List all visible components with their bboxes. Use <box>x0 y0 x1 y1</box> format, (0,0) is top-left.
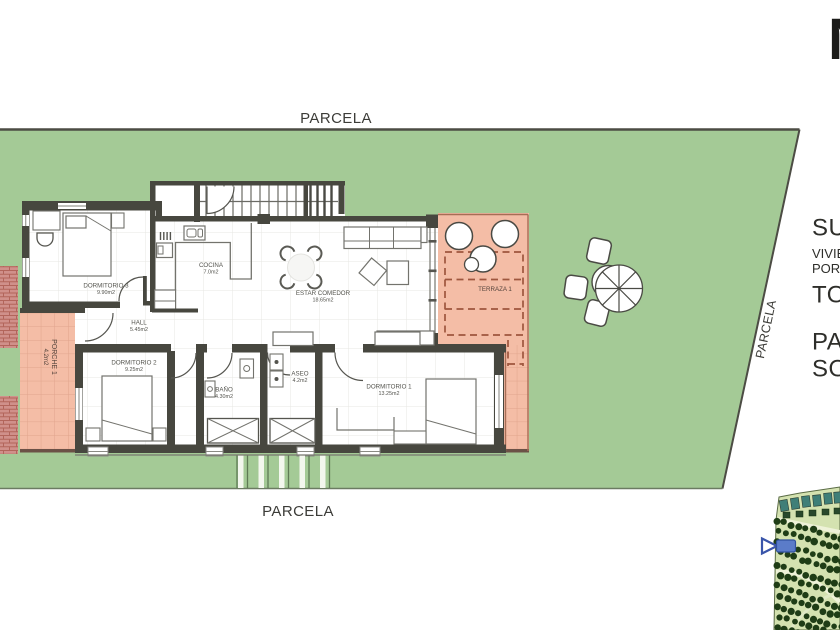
svg-text:18.65m2: 18.65m2 <box>313 298 334 304</box>
svg-text:SOLARIUM: 40 m2: SOLARIUM: 40 m2 <box>812 356 840 383</box>
svg-text:HALL: HALL <box>131 320 147 327</box>
svg-text:9.25m2: 9.25m2 <box>125 367 143 373</box>
svg-text:DORMITORIO 3: DORMITORIO 3 <box>83 283 129 290</box>
svg-text:5.45m2: 5.45m2 <box>130 327 148 333</box>
svg-text:N: N <box>828 7 840 72</box>
svg-text:DORMITORIO 1: DORMITORIO 1 <box>366 384 412 391</box>
svg-text:VIVIENDA: 85.00 m2: VIVIENDA: 85.00 m2 <box>812 246 840 261</box>
svg-text:ESTAR COMEDOR: ESTAR COMEDOR <box>296 290 351 297</box>
svg-text:PARCELA: 260 m2: PARCELA: 260 m2 <box>812 329 840 356</box>
svg-text:7.0m2: 7.0m2 <box>204 270 219 276</box>
svg-text:4.2m2: 4.2m2 <box>293 378 308 384</box>
svg-text:TOTAL: 97.00 m2: TOTAL: 97.00 m2 <box>812 282 840 309</box>
svg-text:4.30m2: 4.30m2 <box>215 394 233 400</box>
svg-text:PORCHE 1: PORCHE 1 <box>50 339 57 375</box>
svg-text:4.2m2: 4.2m2 <box>42 349 48 366</box>
svg-text:13.25m2: 13.25m2 <box>379 391 400 397</box>
svg-text:COCINA: COCINA <box>199 262 224 269</box>
svg-text:ASEO: ASEO <box>291 371 308 378</box>
svg-text:PARCELA: PARCELA <box>300 110 372 127</box>
svg-text:TERRAZA 1: TERRAZA 1 <box>478 286 512 293</box>
svg-text:PORCHES: 12.00 m2: PORCHES: 12.00 m2 <box>812 261 840 276</box>
svg-text:PARCELA: PARCELA <box>262 503 334 520</box>
svg-text:DORMITORIO 2: DORMITORIO 2 <box>111 360 157 367</box>
svg-text:SUPERFICIES: SUPERFICIES <box>812 215 840 242</box>
svg-text:9.90m2: 9.90m2 <box>97 290 115 296</box>
svg-text:BAÑO: BAÑO <box>215 387 233 394</box>
